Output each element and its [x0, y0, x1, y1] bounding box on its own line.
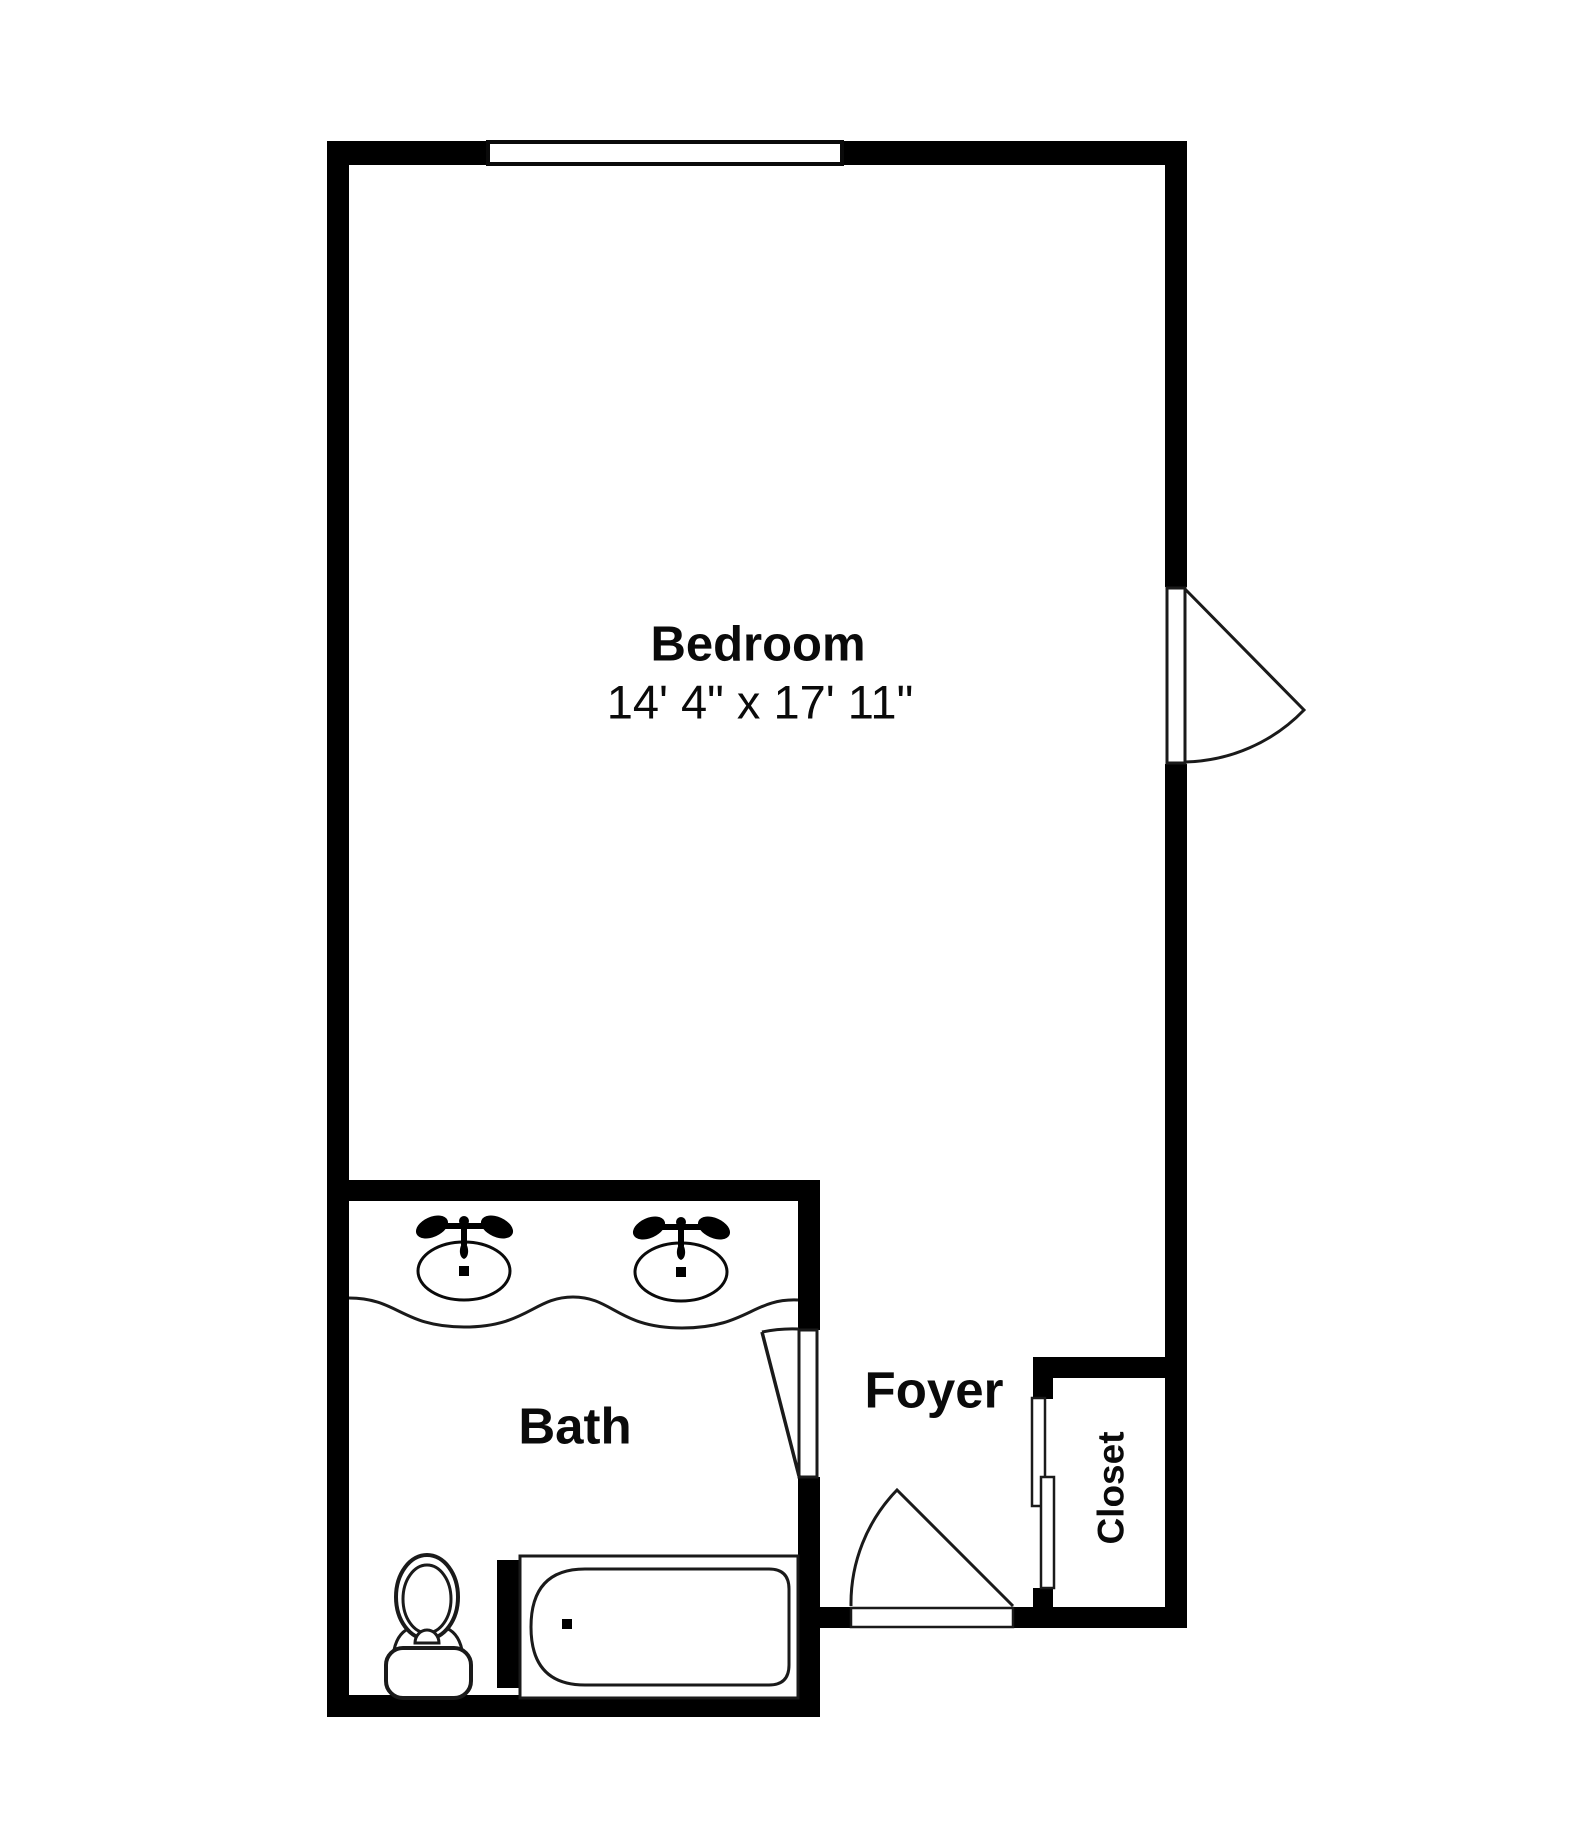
toilet-icon — [386, 1555, 471, 1698]
bedroom-dimensions: 14' 4" x 17' 11" — [607, 679, 914, 726]
foyer-label: Foyer — [865, 1365, 1004, 1416]
exterior-walls — [327, 141, 1187, 1717]
entry-door-swing-icon — [851, 1490, 1013, 1627]
bedroom-door-swing-icon — [1167, 588, 1304, 763]
vanity-sink-icon — [412, 1211, 516, 1300]
bedroom-label: Bedroom — [650, 621, 865, 670]
bathtub-icon — [497, 1556, 798, 1698]
floor-plan-drawing — [0, 0, 1580, 1842]
closet-sliding-door-icon — [1032, 1398, 1054, 1588]
bath-door-swing-icon — [762, 1329, 817, 1477]
vanity-counter — [349, 1297, 798, 1328]
floor-plan: Bedroom 14' 4" x 17' 11" Bath Foyer Clos… — [0, 0, 1580, 1842]
window-icon — [488, 142, 842, 164]
bath-label: Bath — [518, 1401, 631, 1452]
closet-label: Closet — [1093, 1431, 1130, 1544]
vanity-sink-icon — [629, 1212, 733, 1301]
